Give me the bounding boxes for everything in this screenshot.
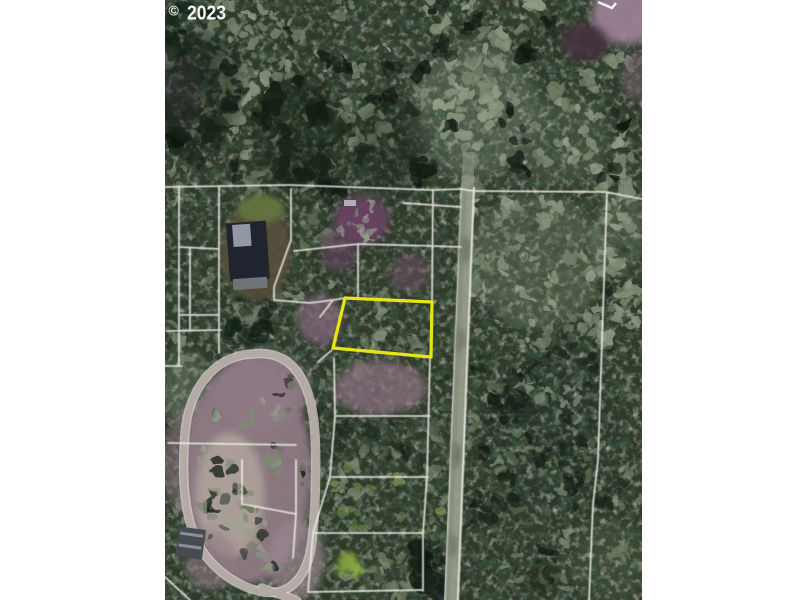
svg-text:©: ©: [169, 3, 180, 19]
svg-text:2023: 2023: [187, 3, 226, 25]
